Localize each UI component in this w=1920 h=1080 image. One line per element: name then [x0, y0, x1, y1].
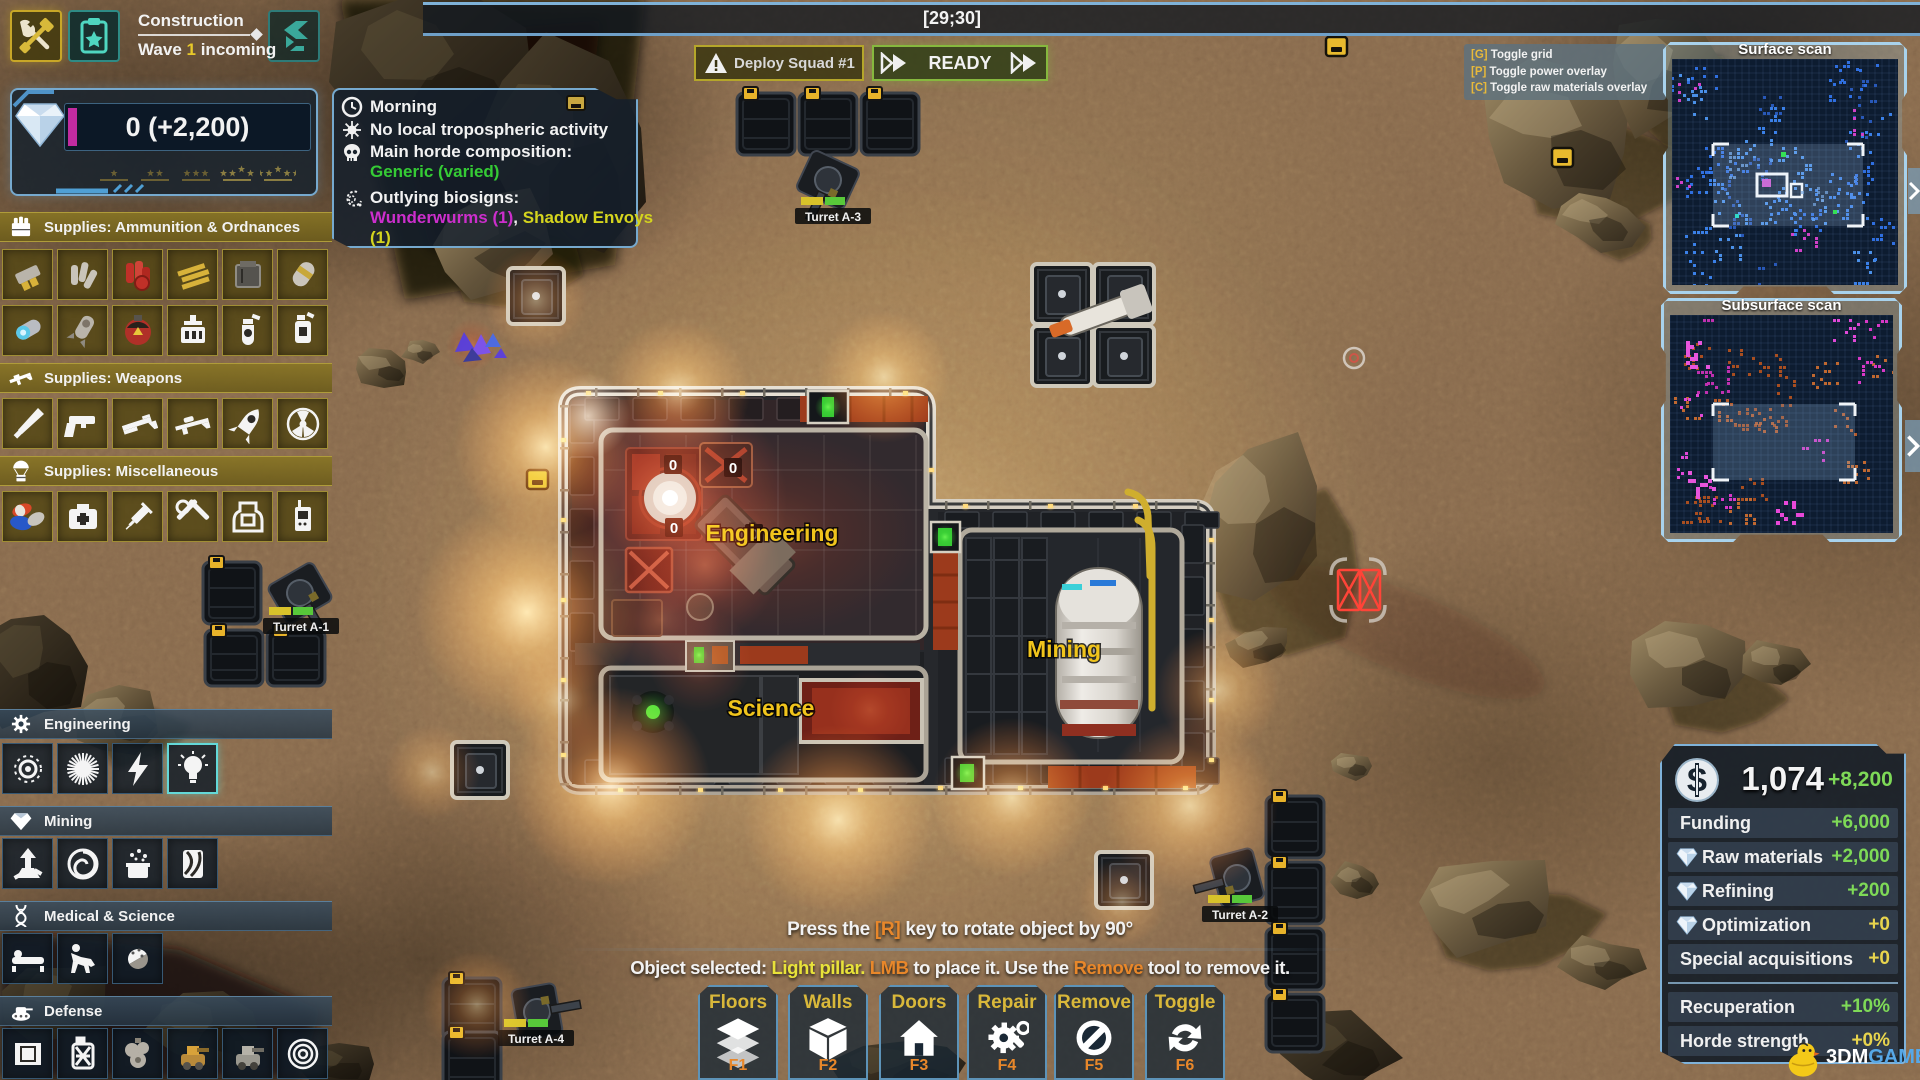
svg-text:Turret A-3: Turret A-3 [805, 210, 861, 224]
svg-text:Science: Science [728, 695, 815, 721]
svg-text:Mining: Mining [1027, 636, 1101, 662]
svg-text:Turret A-1: Turret A-1 [273, 620, 329, 634]
